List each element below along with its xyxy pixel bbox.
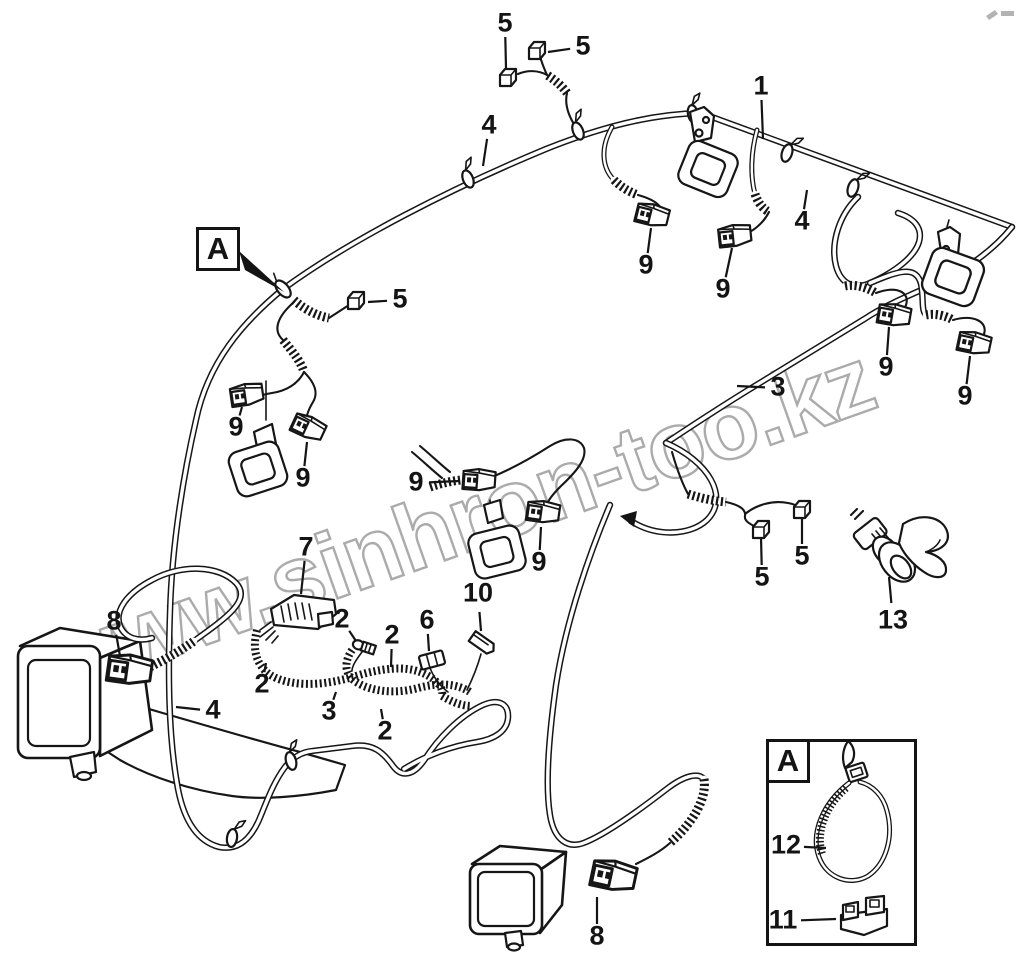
callout-2: 2 bbox=[254, 668, 269, 699]
corner-mark bbox=[986, 10, 1014, 20]
callout-5: 5 bbox=[754, 561, 769, 592]
connector-8 bbox=[106, 652, 153, 686]
callout-9: 9 bbox=[408, 466, 423, 497]
callout-5: 5 bbox=[392, 283, 407, 314]
cube-connectors bbox=[348, 42, 810, 538]
callout-9: 9 bbox=[878, 351, 893, 382]
callout-9: 9 bbox=[295, 462, 310, 493]
connector-9 bbox=[526, 499, 561, 524]
connector-6 bbox=[419, 650, 446, 670]
callout-1: 1 bbox=[753, 70, 768, 101]
callout-9: 9 bbox=[531, 546, 546, 577]
callout-3: 3 bbox=[770, 371, 785, 402]
view-marker-label: A bbox=[207, 231, 229, 267]
callout-9: 9 bbox=[638, 249, 653, 280]
junction-block bbox=[271, 595, 336, 629]
detail-box-label-text: A bbox=[777, 743, 799, 779]
detail-box-label: A bbox=[766, 739, 810, 783]
coiled-leads bbox=[255, 622, 481, 706]
callout-10: 10 bbox=[463, 577, 493, 608]
callout-2: 2 bbox=[377, 715, 392, 746]
callout-7: 7 bbox=[298, 531, 313, 562]
callout-13: 13 bbox=[878, 604, 908, 635]
view-marker-a: A bbox=[196, 227, 240, 271]
connector-9 bbox=[229, 382, 264, 407]
callout-8: 8 bbox=[589, 920, 604, 951]
callout-9: 9 bbox=[715, 273, 730, 304]
connector-9 bbox=[956, 329, 992, 356]
callout-11: 11 bbox=[769, 904, 798, 935]
bulb bbox=[352, 639, 376, 655]
work-lamp-bottom bbox=[470, 846, 566, 951]
connector-9 bbox=[290, 411, 328, 444]
callout-4: 4 bbox=[481, 109, 496, 140]
diagram-canvas: www.sinhron-too.kz bbox=[0, 0, 1016, 978]
callout-4: 4 bbox=[794, 205, 809, 236]
power-socket-13 bbox=[851, 509, 948, 589]
spade-terminal-10 bbox=[469, 631, 497, 656]
callout-2: 2 bbox=[384, 619, 399, 650]
connector-9 bbox=[718, 223, 752, 247]
callout-5: 5 bbox=[497, 7, 512, 38]
connector-9 bbox=[462, 468, 495, 491]
callout-3: 3 bbox=[321, 695, 336, 726]
connector-8 bbox=[590, 857, 638, 894]
callout-6: 6 bbox=[419, 604, 434, 635]
callout-5: 5 bbox=[794, 540, 809, 571]
callout-5: 5 bbox=[575, 30, 590, 61]
callout-9: 9 bbox=[228, 411, 243, 442]
callout-2: 2 bbox=[334, 603, 349, 634]
connector-9 bbox=[634, 201, 670, 229]
callout-9: 9 bbox=[957, 380, 972, 411]
callout-8: 8 bbox=[106, 605, 121, 636]
callout-4: 4 bbox=[205, 694, 220, 725]
callout-12: 12 bbox=[771, 829, 801, 860]
